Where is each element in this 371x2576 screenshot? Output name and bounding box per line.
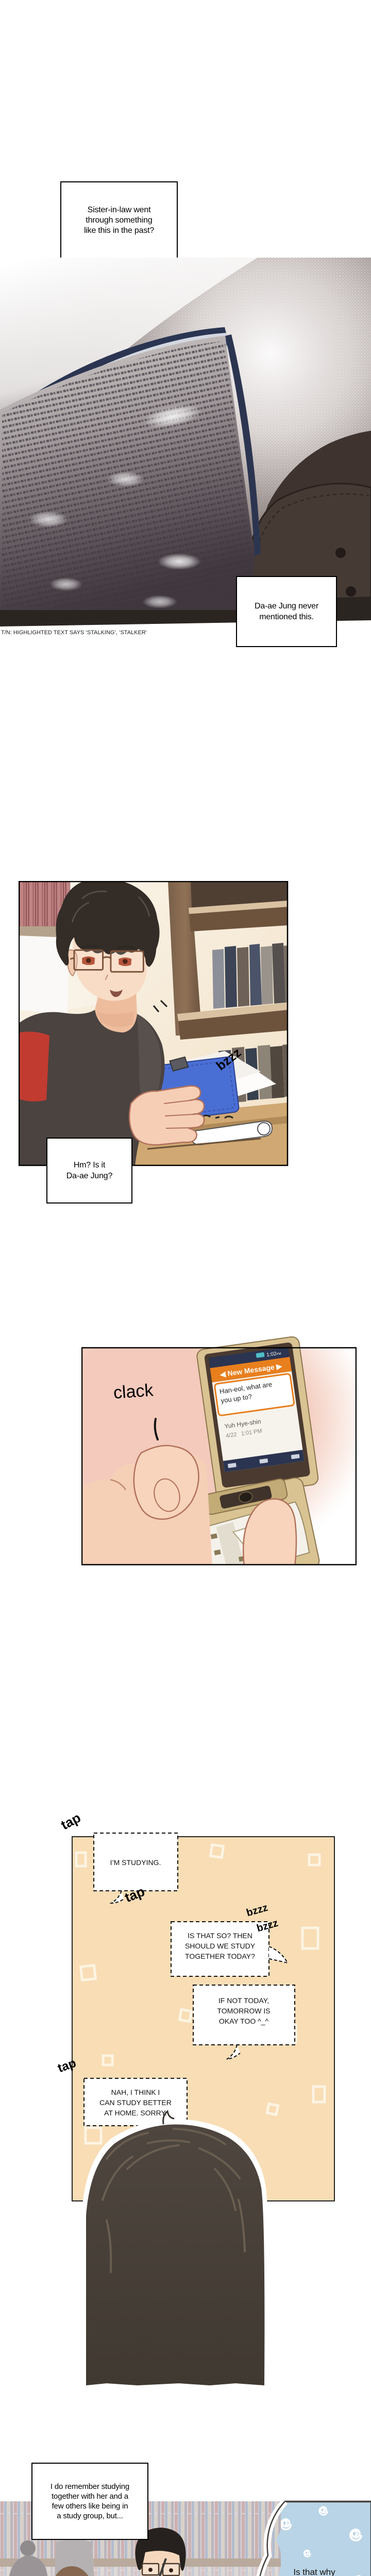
svg-text:NAH, I THINK I: NAH, I THINK I: [111, 2088, 160, 2096]
svg-text:OKAY TOO ^_^: OKAY TOO ^_^: [219, 2017, 269, 2025]
svg-text:IS THAT SO? THEN: IS THAT SO? THEN: [188, 1931, 252, 1940]
svg-text:CAN STUDY BETTER: CAN STUDY BETTER: [99, 2098, 172, 2107]
svg-text:TOGETHER TODAY?: TOGETHER TODAY?: [185, 1952, 255, 1960]
svg-text:IF NOT TODAY,: IF NOT TODAY,: [218, 1996, 269, 2005]
svg-text:I’M STUDYING.: I’M STUDYING.: [110, 1858, 161, 1867]
svg-text:SHOULD WE STUDY: SHOULD WE STUDY: [185, 1942, 256, 1950]
svg-text:AT HOME. SORRY.: AT HOME. SORRY.: [104, 2109, 167, 2117]
svg-text:TOMORROW IS: TOMORROW IS: [217, 2007, 270, 2015]
svg-text:Is that why: Is that why: [293, 2567, 335, 2576]
